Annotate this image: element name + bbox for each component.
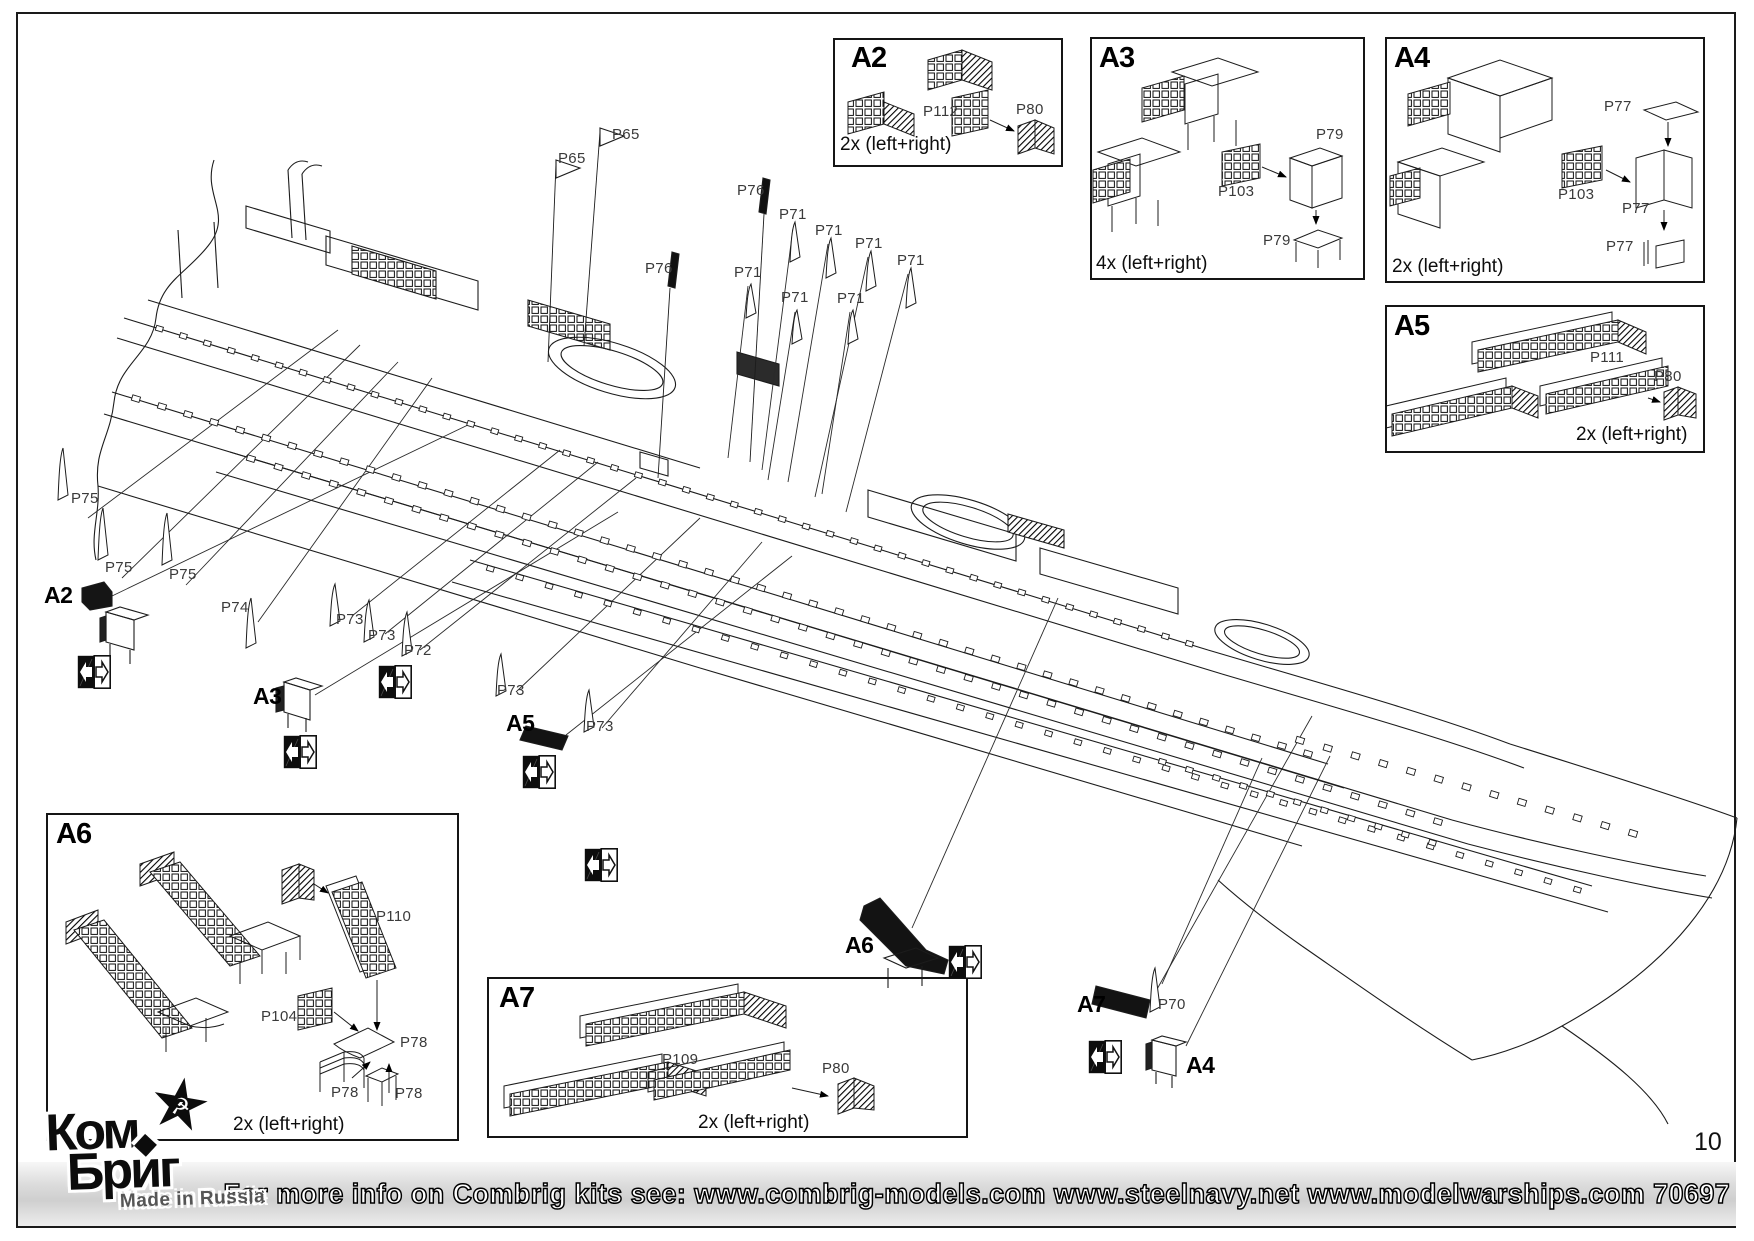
detail-box-a2-quantity: 2x (left+right) (840, 134, 951, 156)
logo-made-in-russia: Made in Russia (120, 1186, 266, 1213)
left-right-arrow-icon (948, 945, 982, 979)
detail-box-a3-part-P79: P79 (1263, 232, 1291, 249)
detail-box-a5-part-P111: P111 (1590, 349, 1624, 366)
left-right-arrow-icon (1088, 1040, 1122, 1074)
part-callout-P70: P70 (1158, 996, 1186, 1013)
detail-box-a5-label: A5 (1394, 310, 1429, 343)
left-right-arrow-icon (77, 655, 111, 689)
detail-box-a3-label: A3 (1099, 42, 1134, 75)
part-callout-P73: P73 (336, 611, 364, 628)
part-callout-P75: P75 (105, 559, 133, 576)
detail-box-a4-part-P77: P77 (1622, 200, 1650, 217)
detail-box-a3-part-P79: P79 (1316, 126, 1344, 143)
left-right-arrow-icon (584, 848, 618, 882)
part-callout-P65: P65 (612, 126, 640, 143)
detail-box-a4-part-P103: P103 (1558, 186, 1594, 203)
hammer-sickle-icon: ☭ (170, 1095, 191, 1121)
assembly-callout-A2: A2 (44, 582, 72, 609)
left-right-arrow-icon (522, 755, 556, 789)
detail-box-a4-part-P77: P77 (1606, 238, 1634, 255)
detail-box-a3-part-P103: P103 (1218, 183, 1254, 200)
assembly-callout-A7: A7 (1077, 991, 1105, 1018)
detail-box-a3-quantity: 4x (left+right) (1096, 253, 1207, 275)
detail-box-a4 (1385, 37, 1705, 283)
part-callout-P75: P75 (169, 566, 197, 583)
detail-box-a4-label: A4 (1394, 42, 1429, 75)
combrig-logo: ★ ☭ Ком ◆ Бриг Made in Russia (36, 1074, 261, 1217)
assembly-callout-A5: A5 (506, 710, 534, 737)
part-callout-P71: P71 (779, 206, 807, 223)
part-callout-P75: P75 (71, 490, 99, 507)
detail-box-a2-part-P80: P80 (1016, 101, 1044, 118)
part-callout-P76: P76 (645, 260, 673, 277)
instruction-sheet-page: A2 A3 A4 A5 A6 A7 2x (left+right) 4x (le… (0, 0, 1754, 1241)
part-callout-P71: P71 (781, 289, 809, 306)
detail-box-a7-quantity: 2x (left+right) (698, 1112, 809, 1134)
detail-box-a7-part-P109: P109 (662, 1051, 698, 1068)
assembly-callout-A6: A6 (845, 932, 873, 959)
detail-box-a2-label: A2 (851, 42, 886, 75)
detail-box-a6-label: A6 (56, 818, 91, 851)
detail-box-a5-quantity: 2x (left+right) (1576, 424, 1687, 446)
detail-box-a4-part-P77: P77 (1604, 98, 1632, 115)
part-callout-P73: P73 (497, 682, 525, 699)
detail-box-a5-part-P80: P80 (1654, 368, 1682, 385)
detail-box-a6-part-P78: P78 (400, 1034, 428, 1051)
part-callout-P71: P71 (855, 235, 883, 252)
detail-box-a7-part-P80: P80 (822, 1060, 850, 1077)
detail-box-a4-quantity: 2x (left+right) (1392, 256, 1503, 278)
part-callout-P73: P73 (586, 718, 614, 735)
part-callout-P65: P65 (558, 150, 586, 167)
footer-banner-text: For more info on Combrig kits see: www.c… (18, 1178, 1730, 1210)
page-number: 10 (1694, 1128, 1722, 1157)
part-callout-P73: P73 (368, 627, 396, 644)
part-callout-P76: P76 (737, 182, 765, 199)
left-right-arrow-icon (378, 665, 412, 699)
detail-box-a6-part-P110: P110 (376, 908, 411, 925)
part-callout-P71: P71 (897, 252, 925, 269)
assembly-callout-A3: A3 (253, 683, 281, 710)
assembly-callout-A4: A4 (1186, 1052, 1214, 1079)
part-callout-P71: P71 (815, 222, 843, 239)
detail-box-a2-part-P112: P112 (923, 103, 958, 120)
part-callout-P71: P71 (837, 290, 865, 307)
part-callout-P74: P74 (221, 599, 249, 616)
part-callout-P71: P71 (734, 264, 762, 281)
detail-box-a6-part-P104: P104 (261, 1008, 297, 1025)
detail-box-a7-label: A7 (499, 982, 534, 1015)
left-right-arrow-icon (283, 735, 317, 769)
detail-box-a6-part-P78: P78 (331, 1084, 359, 1101)
detail-box-a6-part-P78: P78 (395, 1085, 423, 1102)
part-callout-P72: P72 (404, 642, 432, 659)
footer-banner: For more info on Combrig kits see: www.c… (18, 1162, 1736, 1226)
